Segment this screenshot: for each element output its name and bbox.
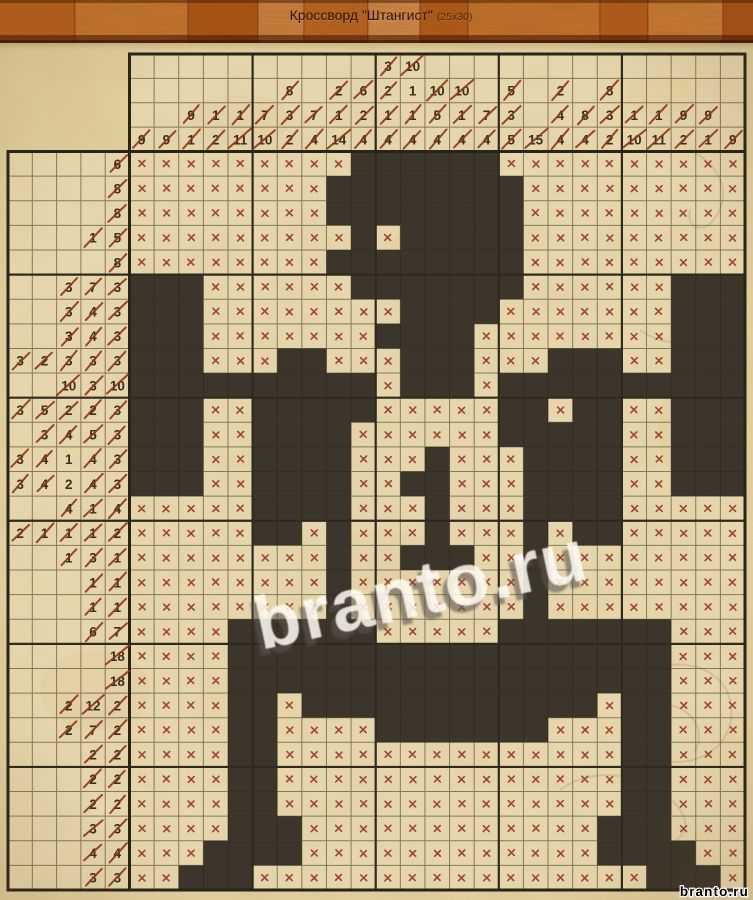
svg-text:branto.ru: branto.ru bbox=[680, 884, 749, 899]
